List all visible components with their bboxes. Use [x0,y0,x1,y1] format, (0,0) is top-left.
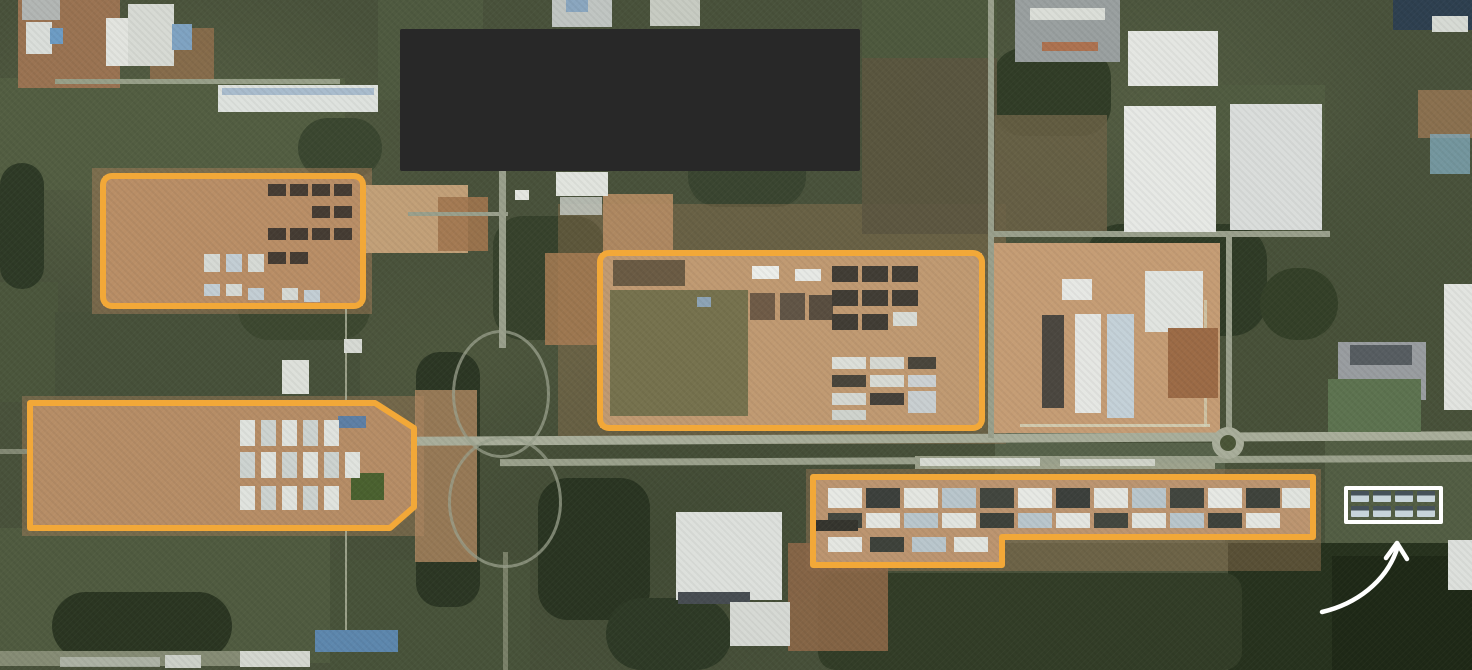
building [1448,540,1472,590]
building [50,28,63,44]
site-building [1056,488,1090,508]
highlight-box [1344,486,1443,524]
building [560,197,602,215]
road [55,79,340,84]
building [1145,271,1203,332]
site-building [832,290,858,306]
dirt-patch [545,253,607,345]
site-building [1094,513,1128,528]
site-building [338,416,366,428]
site-building [912,537,946,552]
forest-patch [1260,268,1338,340]
site-building [282,288,298,300]
site-building [324,486,339,510]
site-building [832,375,866,387]
building [650,0,700,26]
building [1075,314,1101,413]
site-building [261,420,276,446]
field-patch [0,282,58,402]
site-building [282,420,297,446]
site-building [248,288,264,300]
site-building [809,295,833,320]
site-building [303,420,318,446]
building [1128,31,1218,86]
site-building [828,488,862,508]
dirt-patch [1418,90,1472,138]
site-building [832,393,866,405]
building [1042,42,1098,51]
road [448,436,562,568]
road [1220,435,1236,451]
site-building [870,393,904,405]
site-building [1094,488,1128,508]
site-building [1018,513,1052,528]
site-building [268,184,286,196]
building [515,190,529,200]
building [1168,328,1218,398]
site-building [832,410,866,420]
site-building [908,375,936,387]
building [1444,284,1472,410]
site-building [312,184,330,196]
building [165,655,201,668]
site-building [1170,488,1204,508]
site-building [303,452,318,478]
site-building [862,290,888,306]
site-building [1282,488,1310,508]
forest-patch [0,163,44,289]
site-building [980,513,1014,528]
site-building [248,254,264,272]
building [315,630,398,652]
site-building [290,252,308,264]
site-building [204,254,220,272]
site-building [226,254,242,272]
site-building [240,452,255,478]
building [1432,16,1468,32]
site-building [866,488,900,508]
site-building [1132,488,1166,508]
road [503,552,508,670]
site-building [870,357,904,369]
site-building [268,228,286,240]
building [566,0,588,12]
dirt-patch [438,197,488,251]
site-building [828,537,862,552]
road [499,170,506,348]
site-building [1208,488,1242,508]
forest-patch [606,598,732,670]
building [1430,134,1470,174]
site-building [290,184,308,196]
building [240,651,310,667]
site-building [613,260,685,286]
building [26,22,52,54]
field-patch [862,0,997,58]
site-building [324,452,339,478]
site-building [870,375,904,387]
site-building [780,293,805,320]
site-building [1246,488,1280,508]
site-building [303,486,318,510]
road [408,212,508,216]
site-building [892,290,918,306]
building [1350,345,1412,365]
building [730,602,790,646]
building [106,18,128,66]
site-building [750,293,775,320]
site-building [866,513,900,528]
building [282,360,309,394]
building [60,657,160,667]
site-building [893,312,917,326]
site-building [312,206,330,218]
building [1060,459,1155,466]
building [1042,315,1064,408]
building [1062,279,1092,300]
building [172,24,192,50]
site-building [261,486,276,510]
site-building [204,284,220,296]
site-building [268,252,286,264]
site-building [282,452,297,478]
site-building [1018,488,1052,508]
site-building [908,391,936,413]
site-building [870,537,904,552]
road [1226,232,1232,432]
site-building [334,206,352,218]
building [676,512,782,600]
building [1328,379,1421,432]
building [1107,314,1134,418]
site-building [240,420,255,446]
redaction-box [400,29,860,171]
site-building [904,513,938,528]
building [556,172,608,196]
site-building [942,513,976,528]
building [344,339,362,353]
building [1230,104,1322,230]
site-building [816,520,858,531]
site-building [752,266,779,279]
site-building [304,290,320,302]
site-building [832,314,858,330]
site-building [261,452,276,478]
site-building [334,184,352,196]
site-building [610,290,748,416]
site-building [1056,513,1090,528]
site-building [1246,513,1280,528]
site-building [345,452,360,478]
forest-patch [52,592,232,660]
building [1124,106,1216,232]
site-building [1132,513,1166,528]
dirt-patch [603,194,673,256]
site-building [832,266,858,282]
building [1030,8,1105,20]
site-building [312,228,330,240]
building [22,0,60,20]
site-building [324,420,339,446]
site-building [832,357,866,369]
road [988,0,994,438]
site-building [1208,513,1242,528]
site-building [892,266,918,282]
site-building [862,266,888,282]
site-building [954,537,988,552]
site-building [697,297,711,307]
site-building [1170,513,1204,528]
site-building [240,486,255,510]
building [920,458,1040,466]
dirt-patch [995,115,1107,235]
site-building [334,228,352,240]
site-building [795,269,821,281]
dirt-patch [862,58,997,234]
site-building [980,488,1014,508]
site-building [908,357,936,369]
site-building [942,488,976,508]
building [128,4,174,66]
site-building [226,284,242,296]
site-building [904,488,938,508]
site-building [282,486,297,510]
site-building [862,314,888,330]
satellite-map[interactable] [0,0,1472,670]
road [1020,424,1210,427]
building [222,88,374,95]
site-building [290,228,308,240]
